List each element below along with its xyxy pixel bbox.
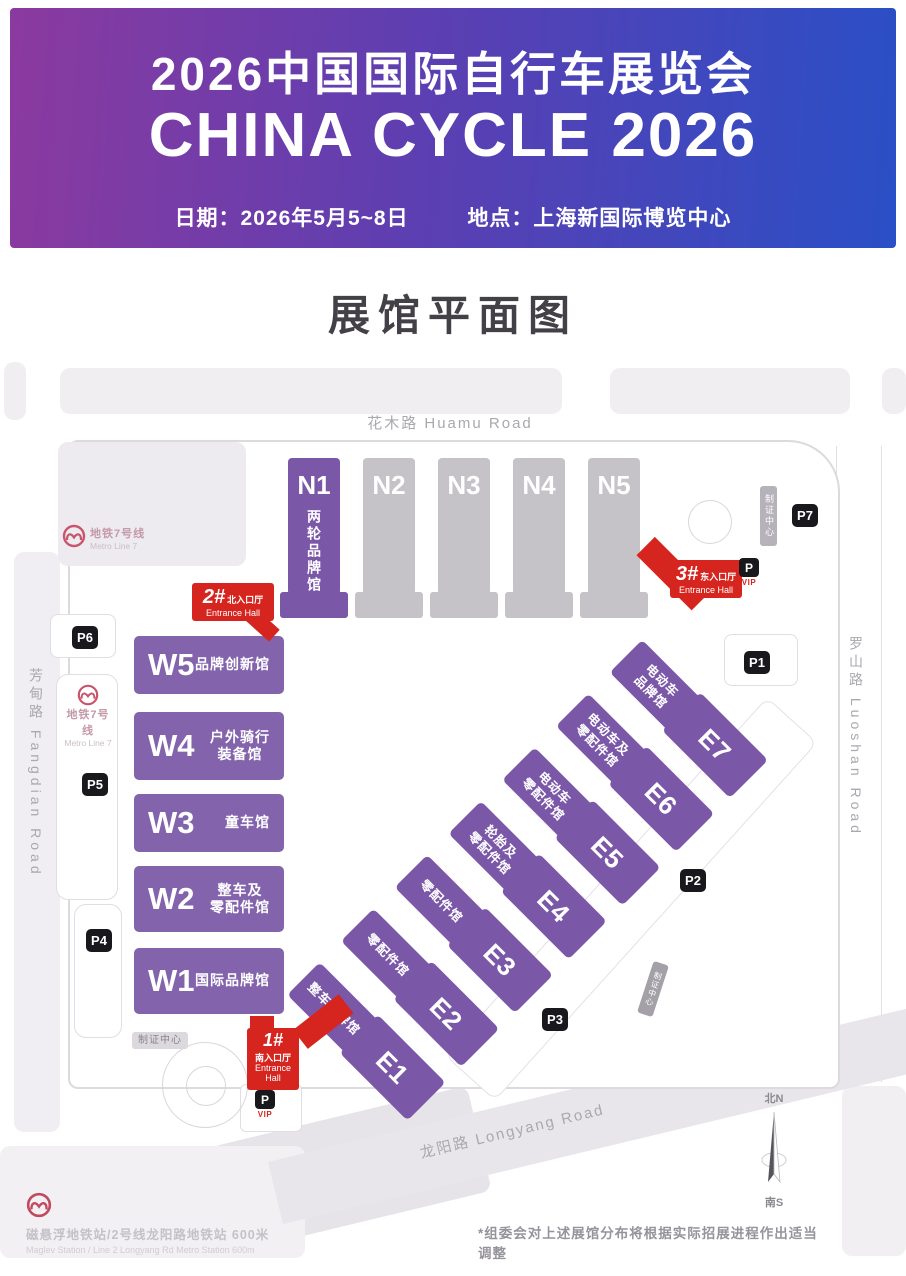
- parking-badge-p6: P6: [72, 626, 98, 649]
- entrance-name: 北入口厅: [227, 593, 263, 606]
- vip-parking-south: P VIP: [254, 1090, 276, 1119]
- hall-w1: W1 国际品牌馆: [134, 948, 284, 1014]
- parking-lot-p4: [74, 904, 122, 1038]
- header-banner: 2026中国国际自行车展览会 CHINA CYCLE 2026 日期：2026年…: [10, 8, 896, 248]
- metro-line7-label-en: Metro Line 7: [90, 541, 160, 551]
- metro-line7-label-zh: 地铁7号线: [90, 525, 160, 541]
- badge-center-north: 制证中心: [760, 486, 777, 546]
- compass-needle-icon: [759, 1108, 789, 1192]
- date-venue-line: 日期：2026年5月5~8日 地点：上海新国际博览中心: [10, 202, 896, 232]
- hall-code: W1: [148, 963, 195, 999]
- metro-line7-marker-west: 地铁7号线 Metro Line 7: [62, 684, 114, 748]
- map-title: 展馆平面图: [0, 282, 906, 343]
- road-label-luoshan: 罗山路 Luoshan Road: [846, 636, 866, 876]
- hall-base: [355, 592, 423, 618]
- roundabout-south-inner: [186, 1066, 226, 1106]
- parking-badge-p1: P1: [744, 651, 770, 674]
- city-block: [882, 368, 906, 414]
- city-block: [842, 1086, 906, 1256]
- hall-code: N5: [588, 470, 640, 501]
- title-english: CHINA CYCLE 2026: [10, 100, 896, 171]
- entrance-number: 2#: [203, 586, 225, 609]
- hall-base: [580, 592, 648, 618]
- hall-base: [430, 592, 498, 618]
- hall-code: W2: [148, 881, 195, 917]
- road-label-huamu: 花木路 Huamu Road: [340, 412, 560, 433]
- entrance-hall-east: 3# 东入口厅 Entrance Hall: [670, 560, 742, 598]
- hall-code: N1: [288, 470, 340, 501]
- hall-category: 童车馆: [225, 814, 270, 832]
- hall-code: N3: [438, 470, 490, 501]
- parking-badge-p3: P3: [542, 1008, 568, 1031]
- maglev-note-zh: 磁悬浮地铁站/2号线龙阳路地铁站 600米: [26, 1224, 269, 1243]
- metro-line7-label-en: Metro Line 7: [62, 738, 114, 748]
- vip-parking-east: P VIP: [738, 558, 760, 587]
- city-block: [610, 368, 850, 414]
- metro-logo-icon: [26, 1192, 52, 1218]
- hall-w2: W2 整车及 零配件馆: [134, 866, 284, 932]
- entrance-hall-south: 1# 南入口厅 Entrance Hall: [247, 1028, 299, 1090]
- hall-code: W3: [148, 805, 195, 841]
- hall-base: [280, 592, 348, 618]
- hall-n5: N5: [588, 458, 640, 595]
- hall-code: W5: [148, 647, 195, 683]
- city-block: [4, 362, 26, 420]
- entrance-hall-north: 2# 北入口厅 Entrance Hall: [192, 583, 274, 621]
- hall-w5: W5 品牌创新馆: [134, 636, 284, 694]
- entrance-name-en: Entrance Hall: [192, 609, 274, 619]
- title-chinese: 2026中国国际自行车展览会: [10, 38, 896, 104]
- maglev-note-en: Maglev Station / Line 2 Longyang Rd Metr…: [26, 1245, 269, 1255]
- hall-w4: W4 户外骑行 装备馆: [134, 712, 284, 780]
- road-label-fangdian: 芳甸路 Fangdian Road: [26, 668, 46, 938]
- metro-logo-icon: [62, 524, 86, 548]
- hall-category: 国际品牌馆: [195, 972, 270, 990]
- date-label: 日期：2026年5月5~8日: [175, 207, 409, 230]
- roundabout-north: [688, 500, 732, 544]
- compass-south-label: 南S: [742, 1194, 806, 1210]
- parking-badge-p7: P7: [792, 504, 818, 527]
- maglev-station-note: 磁悬浮地铁站/2号线龙阳路地铁站 600米 Maglev Station / L…: [26, 1192, 269, 1255]
- vip-label: VIP: [738, 578, 760, 587]
- venue-label: 地点：上海新国际博览中心: [467, 207, 731, 230]
- vip-label: VIP: [254, 1110, 276, 1119]
- footnote: *组委会对上述展馆分布将根据实际招展进程作出适当调整: [478, 1222, 818, 1262]
- city-block: [60, 368, 562, 414]
- parking-badge-p2: P2: [680, 869, 706, 892]
- parking-badge-p5: P5: [82, 773, 108, 796]
- parking-badge-p4: P4: [86, 929, 112, 952]
- hall-category: 品牌创新馆: [195, 656, 270, 674]
- hall-n1: N1 两轮品牌馆: [288, 458, 340, 595]
- exhibition-floorplan-poster: 2026中国国际自行车展览会 CHINA CYCLE 2026 日期：2026年…: [0, 0, 906, 1276]
- entrance-name-en: Entrance Hall: [670, 586, 742, 596]
- metro-line7-label-zh: 地铁7号线: [62, 706, 114, 738]
- compass-north-label: 北N: [742, 1090, 806, 1106]
- entrance-name-en: Entrance Hall: [247, 1064, 299, 1084]
- hall-w3: W3 童车馆: [134, 794, 284, 852]
- hall-code: W4: [148, 728, 195, 764]
- hall-code: N2: [363, 470, 415, 501]
- hall-category: 户外骑行 装备馆: [210, 729, 270, 764]
- hall-category: 两轮品牌馆: [304, 509, 324, 594]
- parking-icon: P: [255, 1090, 275, 1109]
- compass: 北N 南S: [742, 1090, 806, 1210]
- hall-base: [505, 592, 573, 618]
- entrance-number: 3#: [676, 563, 698, 586]
- entrance-name: 东入口厅: [700, 570, 736, 583]
- hall-n2: N2: [363, 458, 415, 595]
- entrance-number: 1#: [247, 1030, 299, 1051]
- hall-category: 整车及 零配件馆: [210, 882, 270, 917]
- metro-logo-icon: [77, 684, 99, 706]
- hall-n4: N4: [513, 458, 565, 595]
- hall-code: N4: [513, 470, 565, 501]
- parking-icon: P: [739, 558, 759, 577]
- badge-center-south: 制证中心: [132, 1032, 188, 1049]
- hall-n3: N3: [438, 458, 490, 595]
